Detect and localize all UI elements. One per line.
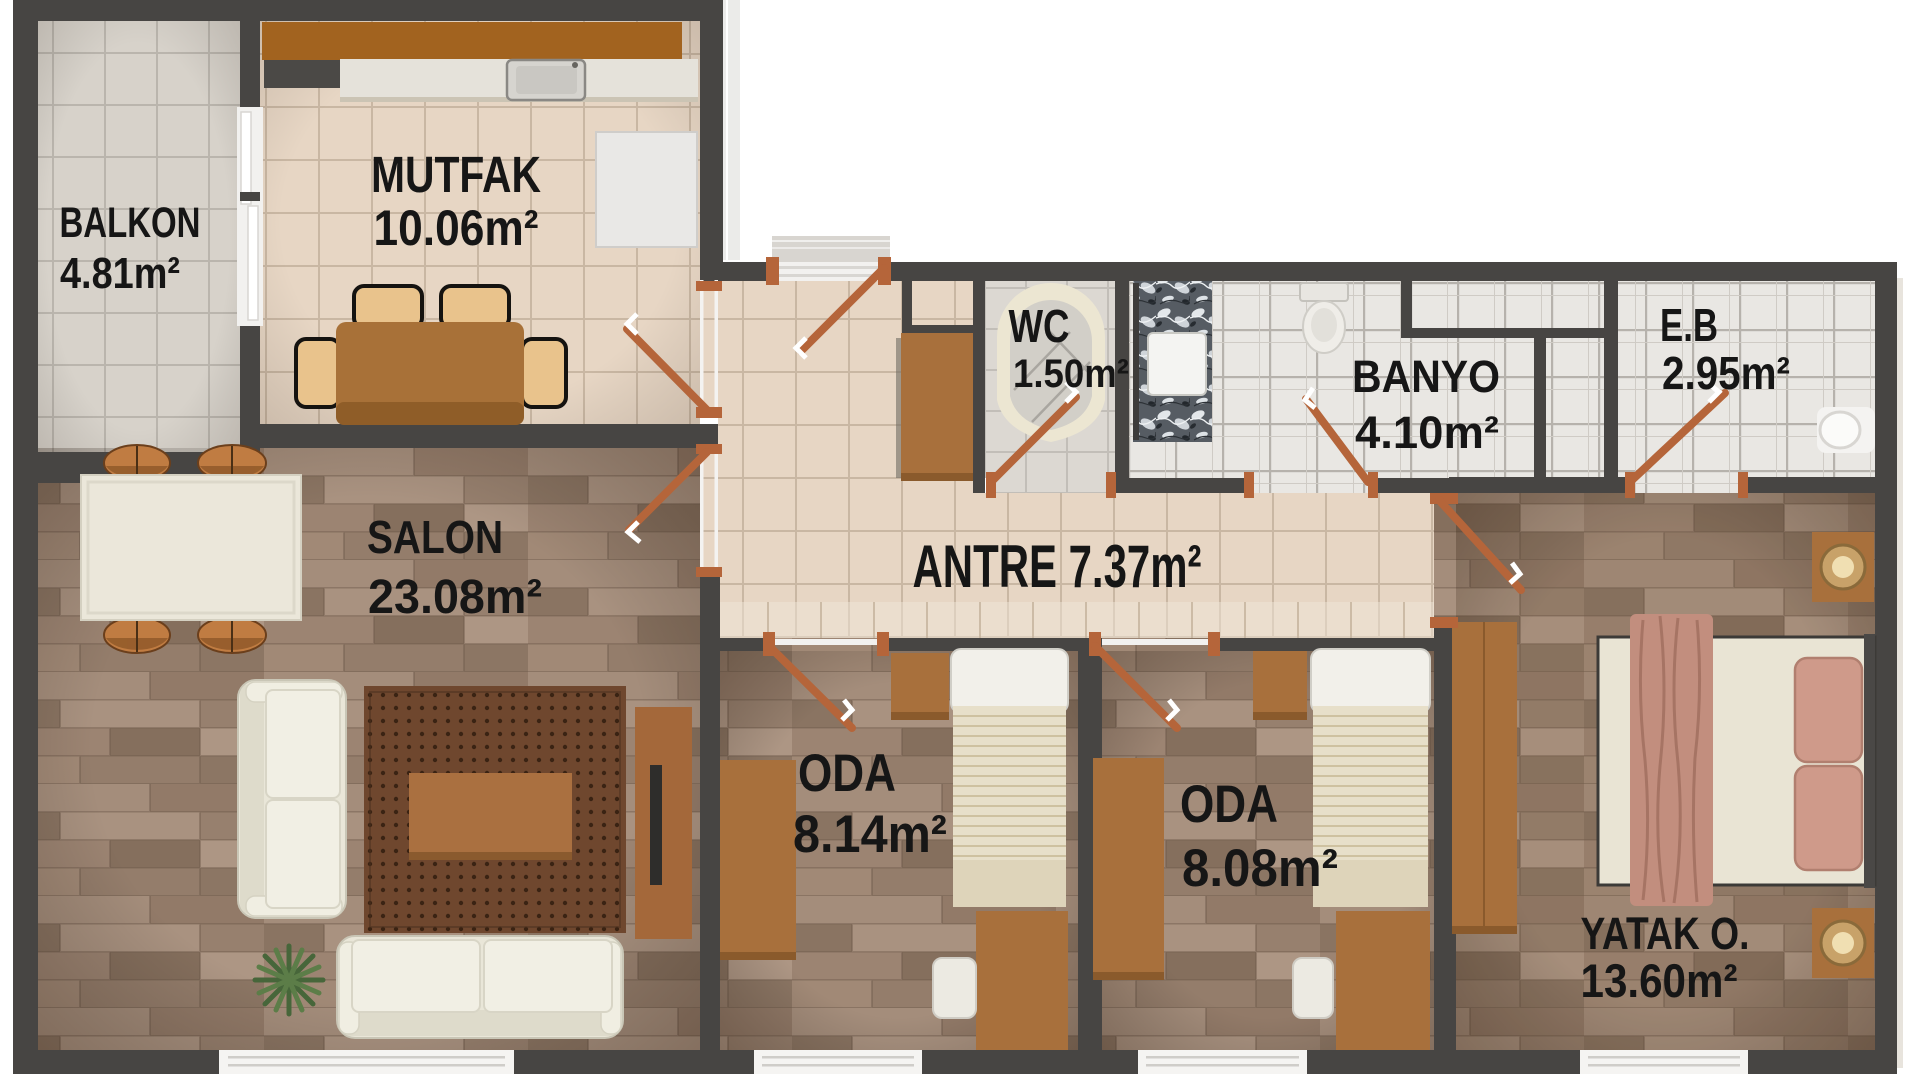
svg-text:ANTRE 7.37m²: ANTRE 7.37m² xyxy=(913,533,1202,600)
svg-text:2.95m²: 2.95m² xyxy=(1662,347,1790,399)
svg-text:YATAK O.: YATAK O. xyxy=(1581,908,1750,959)
svg-text:SALON: SALON xyxy=(367,511,503,563)
svg-text:8.14m²: 8.14m² xyxy=(793,805,947,864)
svg-text:1.50m²: 1.50m² xyxy=(1013,352,1129,396)
svg-text:ODA: ODA xyxy=(798,744,896,803)
svg-text:4.81m²: 4.81m² xyxy=(60,249,180,298)
svg-text:4.10m²: 4.10m² xyxy=(1355,407,1499,458)
svg-text:8.08m²: 8.08m² xyxy=(1182,839,1338,898)
svg-text:23.08m²: 23.08m² xyxy=(368,571,542,624)
svg-text:BANYO: BANYO xyxy=(1352,351,1500,402)
svg-text:BALKON: BALKON xyxy=(60,199,201,247)
svg-text:10.06m²: 10.06m² xyxy=(374,200,539,256)
svg-text:ODA: ODA xyxy=(1180,775,1278,834)
svg-text:E.B: E.B xyxy=(1660,299,1718,351)
svg-text:MUTFAK: MUTFAK xyxy=(371,146,541,203)
svg-text:WC: WC xyxy=(1009,300,1070,352)
svg-text:13.60m²: 13.60m² xyxy=(1581,954,1738,1007)
